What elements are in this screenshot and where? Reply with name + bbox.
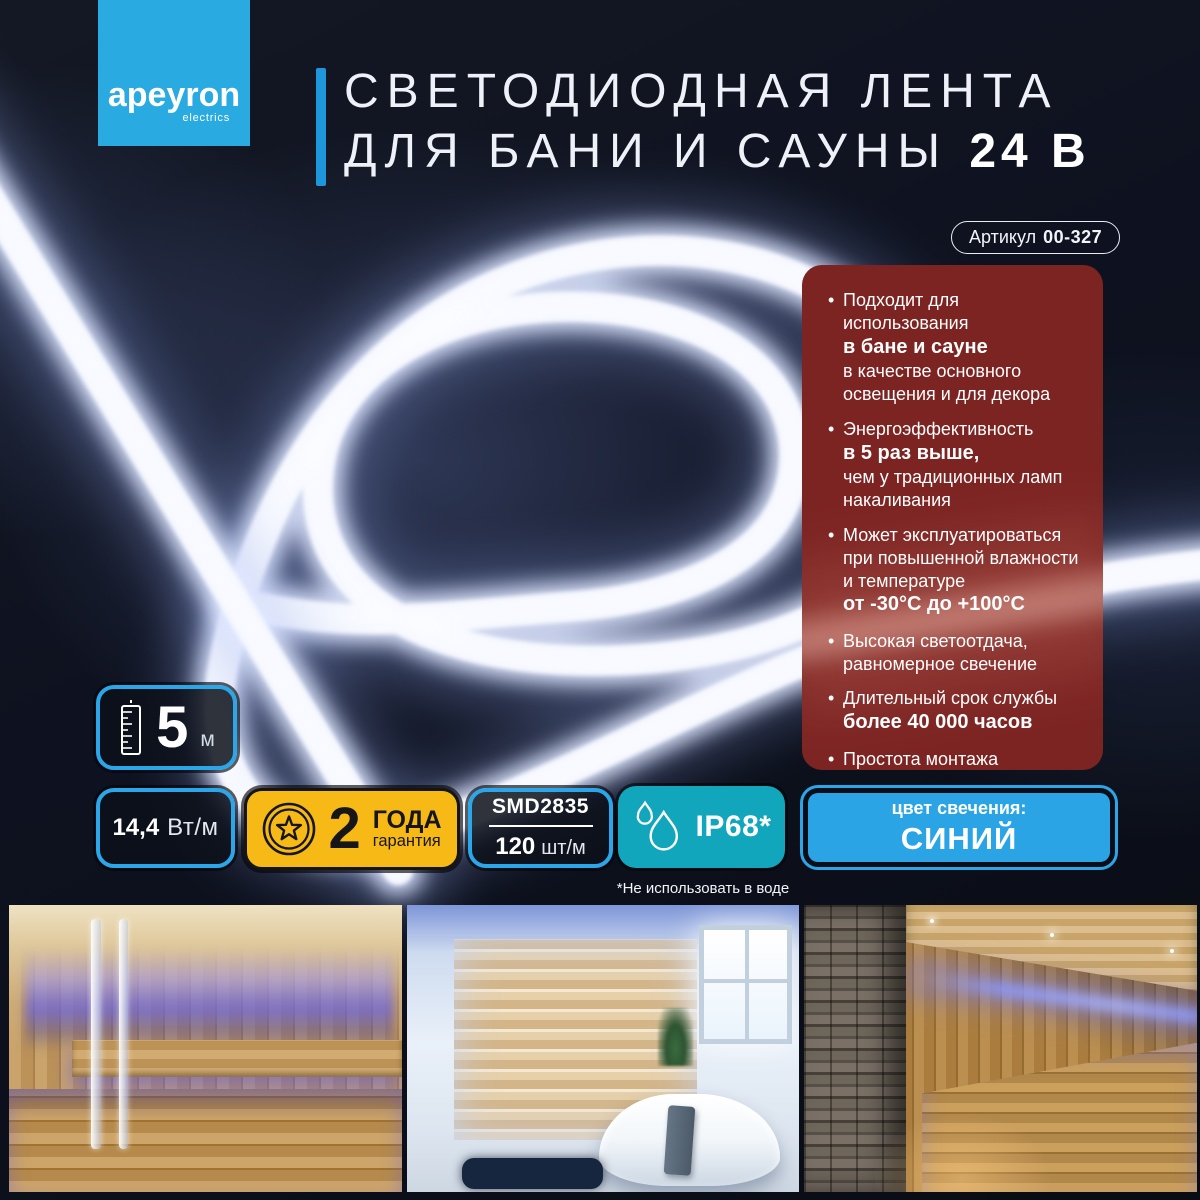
features-list: Подходит для использования в бане и саун… <box>828 289 1083 770</box>
power-unit: Вт/м <box>167 814 218 842</box>
length-value: 5 <box>156 699 188 757</box>
warranty-text: ГОДА гарантия <box>373 807 442 851</box>
photo-art-warm-glow <box>875 1071 1091 1192</box>
water-drops-icon <box>632 797 688 857</box>
article-label: Артикул <box>969 227 1036 248</box>
brand-logo: apeyron electrics <box>98 0 250 146</box>
led-density: 120 шт/м <box>495 833 586 861</box>
ruler-icon <box>118 700 144 756</box>
light-color-label: цвет свечения: <box>892 798 1027 819</box>
feature-item: Высокая светоотдача, равномерное свечени… <box>828 630 1083 676</box>
medal-star-icon <box>262 802 316 856</box>
photo-sauna-left <box>9 905 402 1192</box>
feature-item: Подходит для использования в бане и саун… <box>828 289 1083 406</box>
features-panel: Подходит для использования в бане и саун… <box>802 265 1103 770</box>
ip-rating-badge: IP68* <box>618 786 785 868</box>
warranty-label: гарантия <box>373 833 442 850</box>
photo-sauna-right <box>804 905 1197 1192</box>
led-chip-type: SMD2835 <box>492 795 589 819</box>
title-voltage: 24 В <box>969 125 1090 178</box>
light-color-inner: цвет свечения: СИНИЙ <box>808 793 1110 862</box>
photo-art-door-handle <box>91 919 100 1149</box>
divider-line <box>489 825 593 827</box>
brand-tagline: electrics <box>182 112 230 124</box>
feature-item: Может эксплуатироваться при повышенной в… <box>828 524 1083 618</box>
power-badge: 14,4 Вт/м <box>96 788 235 868</box>
brand-name: apeyron <box>108 78 240 112</box>
light-color-badge: цвет свечения: СИНИЙ <box>800 785 1118 870</box>
photo-art-rug <box>462 1158 603 1190</box>
product-poster: apeyron electrics СВЕТОДИОДНАЯ ЛЕНТА ДЛЯ… <box>0 0 1200 1200</box>
feature-item: Простота монтажа <box>828 748 1083 770</box>
warranty-badge: 2 ГОДА гарантия <box>244 788 460 870</box>
warranty-unit: ГОДА <box>373 807 442 833</box>
ip-rating-value: IP68* <box>696 810 772 844</box>
title-line1: СВЕТОДИОДНАЯ ЛЕНТА <box>344 62 1091 122</box>
power-value: 14,4 <box>112 814 159 842</box>
photo-art-window <box>699 925 791 1044</box>
length-unit: м <box>200 728 214 752</box>
title-accent-bar <box>316 68 326 186</box>
page-title: СВЕТОДИОДНАЯ ЛЕНТА ДЛЯ БАНИ И САУНЫ 24 В <box>344 62 1091 182</box>
photo-art-bench-lower <box>9 1089 402 1192</box>
feature-item: Длительный срок службы более 40 000 часо… <box>828 687 1083 735</box>
light-color-value: СИНИЙ <box>901 821 1018 857</box>
photo-art-door-handle <box>119 919 128 1149</box>
warranty-value: 2 <box>328 803 360 855</box>
length-badge: 5 м <box>96 685 237 770</box>
photo-art-blue-led-glow <box>25 948 394 1051</box>
photo-art-plant <box>658 1008 693 1065</box>
led-chip-badge: SMD2835 120 шт/м <box>468 788 613 868</box>
ip-rating-note: *Не использовать в воде <box>607 880 799 897</box>
feature-item: Энергоэффективность в 5 раз выше, чем у … <box>828 418 1083 512</box>
article-badge: Артикул 00-327 <box>951 221 1120 254</box>
photo-art-towel <box>663 1105 695 1176</box>
title-line2: ДЛЯ БАНИ И САУНЫ 24 В <box>344 122 1091 182</box>
photo-row <box>9 905 1197 1192</box>
article-number: 00-327 <box>1043 227 1102 248</box>
photo-bathroom-center <box>407 905 800 1192</box>
